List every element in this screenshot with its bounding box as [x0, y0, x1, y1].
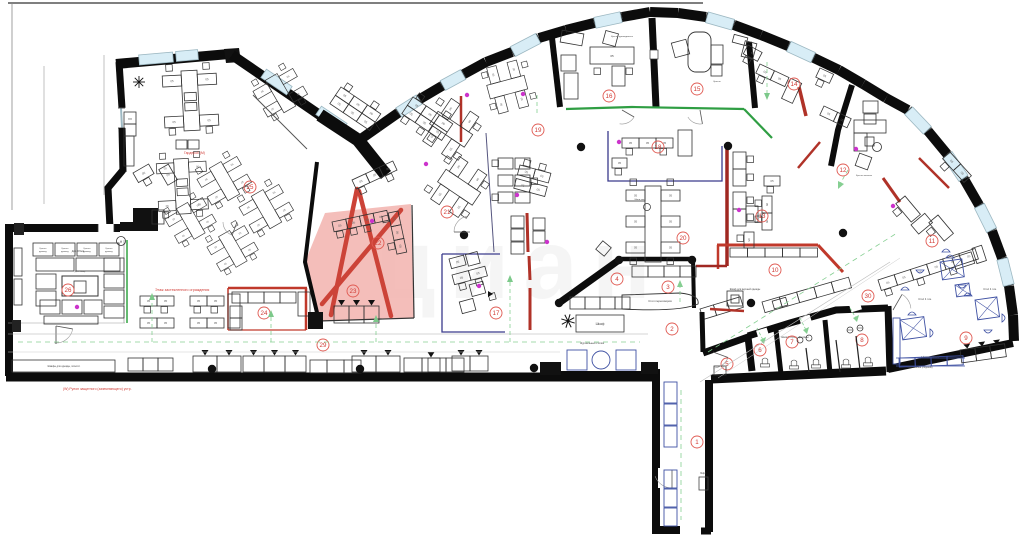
svg-text:05: 05 [669, 246, 673, 250]
svg-text:3: 3 [666, 284, 670, 291]
svg-text:2: 2 [670, 326, 674, 333]
svg-text:24: 24 [261, 310, 268, 317]
svg-text:05: 05 [197, 299, 201, 303]
svg-text:25: 25 [247, 184, 254, 191]
svg-text:Доп. Обзор: Доп. Обзор [75, 271, 86, 273]
svg-text:23: 23 [350, 288, 357, 295]
svg-text:Доп. Обзор: Доп. Обзор [72, 250, 85, 253]
svg-text:05: 05 [765, 203, 769, 207]
svg-text:05: 05 [646, 141, 650, 145]
svg-text:15: 15 [694, 86, 701, 93]
svg-text:9: 9 [964, 335, 968, 342]
svg-text:05: 05 [172, 120, 176, 124]
svg-text:11: 11 [929, 238, 936, 245]
svg-text:Кресло: Кресло [40, 248, 48, 250]
svg-text:05: 05 [618, 161, 622, 165]
svg-text:руковод.: руковод. [39, 251, 47, 253]
svg-text:05: 05 [170, 79, 174, 83]
svg-text:21: 21 [444, 209, 451, 216]
svg-text:22: 22 [375, 240, 382, 247]
svg-text:10: 10 [772, 267, 779, 274]
svg-text:05: 05 [207, 118, 211, 122]
svg-text:05: 05 [747, 238, 751, 242]
svg-text:Кресло качалка: Кресло качалка [856, 175, 873, 177]
svg-text:Этаж застекленного ограждения: Этаж застекленного ограждения [155, 288, 209, 292]
svg-text:18: 18 [655, 144, 662, 151]
svg-text:05: 05 [197, 321, 201, 325]
svg-text:05: 05 [669, 220, 673, 224]
svg-text:Стол переговоров: Стол переговоров [648, 299, 672, 303]
svg-text:Гардероб (М): Гардероб (М) [184, 151, 205, 155]
svg-text:Кресло: Кресло [84, 248, 92, 250]
svg-text:XX: XX [128, 117, 132, 121]
svg-text:19: 19 [535, 127, 542, 134]
svg-text:4: 4 [615, 276, 619, 283]
svg-text:14: 14 [791, 81, 798, 88]
svg-text:05: 05 [634, 246, 638, 250]
svg-text:(W) Рулон защитного (заземляющ: (W) Рулон защитного (заземляющего) устр. [63, 387, 132, 391]
svg-text:руковод.: руковод. [83, 251, 91, 253]
svg-text:16: 16 [606, 93, 613, 100]
svg-text:Мини печь: Мини печь [635, 199, 647, 201]
svg-text:Шкаф для верхней одежды: Шкаф для верхней одежды [730, 288, 761, 291]
svg-text:05: 05 [214, 321, 218, 325]
svg-text:6: 6 [758, 347, 762, 354]
svg-text:7: 7 [790, 339, 794, 346]
svg-text:05: 05 [147, 321, 151, 325]
svg-text:05: 05 [164, 321, 168, 325]
svg-text:8: 8 [860, 337, 864, 344]
svg-text:05: 05 [214, 299, 218, 303]
svg-text:05: 05 [610, 54, 614, 58]
svg-text:Стол 4 п.м.: Стол 4 п.м. [983, 287, 997, 291]
svg-text:Лифт: Лифт [700, 472, 707, 475]
svg-text:Шкаф: Шкаф [596, 322, 605, 326]
svg-text:17: 17 [493, 310, 500, 317]
svg-text:13: 13 [759, 213, 766, 220]
svg-text:30: 30 [865, 293, 872, 300]
svg-text:26: 26 [65, 287, 72, 294]
svg-text:Кресло руководителя: Кресло руководителя [611, 36, 634, 38]
svg-text:Кресло: Кресло [713, 81, 721, 83]
svg-text:05: 05 [634, 220, 638, 224]
svg-text:Журнальный столик: Журнальный столик [580, 341, 605, 345]
svg-text:05: 05 [164, 299, 168, 303]
svg-text:05: 05 [205, 77, 209, 81]
svg-text:20: 20 [680, 235, 687, 242]
svg-text:05: 05 [634, 194, 638, 198]
svg-text:Кресло: Кресло [106, 248, 114, 250]
svg-text:29: 29 [320, 342, 327, 349]
svg-text:Мягкая зона (сидения): Мягкая зона (сидения) [907, 366, 932, 369]
svg-text:руковод.: руковод. [105, 251, 113, 253]
svg-text:Шкафы для одежды, посетит.: Шкафы для одежды, посетит. [48, 365, 81, 368]
svg-text:05: 05 [629, 141, 633, 145]
svg-text:05: 05 [669, 194, 673, 198]
svg-text:1: 1 [695, 439, 699, 446]
svg-text:Стол 4 п.м.: Стол 4 п.м. [918, 297, 932, 301]
svg-text:руковод.: руковод. [61, 251, 69, 253]
svg-text:1-й тариф (стол): 1-й тариф (стол) [921, 356, 940, 359]
svg-text:Кресло: Кресло [62, 248, 70, 250]
svg-text:05: 05 [770, 179, 774, 183]
